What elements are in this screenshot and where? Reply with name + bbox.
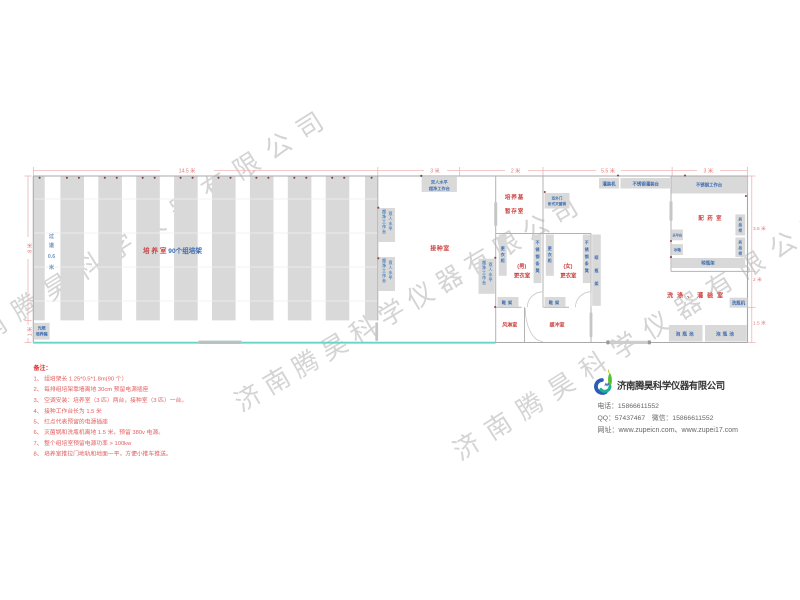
svg-text:泡瓶池: 泡瓶池 <box>676 331 696 338</box>
svg-text:工: 工 <box>382 219 386 224</box>
svg-text:QQ：57437467 微信：15866611552: QQ：57437467 微信：15866611552 <box>598 413 714 422</box>
svg-text:人: 人 <box>488 267 493 272</box>
svg-text:净: 净 <box>482 265 486 270</box>
svg-text:3、 空调安装：培养室（3 匹）两台，接种室（3 匹）一台。: 3、 空调安装：培养室（3 匹）两台，接种室（3 匹）一台。 <box>34 396 188 404</box>
svg-text:晾: 晾 <box>595 254 599 260</box>
svg-text:2、 每排组培架靠墙离地 30cm 预留电源插座: 2、 每排组培架靠墙离地 30cm 预留电源插座 <box>34 385 149 393</box>
svg-text:鞋架: 鞋架 <box>549 299 561 306</box>
svg-text:平: 平 <box>489 277 493 282</box>
svg-text:条: 条 <box>535 260 540 266</box>
svg-text:洗涤、灌装室: 洗涤、灌装室 <box>667 292 727 300</box>
svg-text:2 米: 2 米 <box>511 166 521 174</box>
svg-text:晾瓶架: 晾瓶架 <box>701 259 715 266</box>
svg-text:5.5 米: 5.5 米 <box>601 166 616 174</box>
svg-text:光照: 光照 <box>37 325 46 331</box>
svg-text:柜: 柜 <box>547 257 552 263</box>
svg-text:双: 双 <box>388 211 393 216</box>
svg-text:不: 不 <box>536 239 540 245</box>
svg-text:钢: 钢 <box>585 253 589 259</box>
svg-text:备注：: 备注： <box>33 364 52 372</box>
svg-text:人: 人 <box>388 265 393 270</box>
svg-text:净: 净 <box>382 214 386 219</box>
svg-text:8、 培养室推拉门地轨和地面一平，方便小推车推送。: 8、 培养室推拉门地轨和地面一平，方便小推车推送。 <box>34 450 172 458</box>
svg-text:4、 接种工作台长为 1.5 米: 4、 接种工作台长为 1.5 米 <box>34 407 102 415</box>
svg-text:药: 药 <box>739 217 743 222</box>
svg-text:柜: 柜 <box>738 228 743 233</box>
svg-text:柜: 柜 <box>738 251 743 256</box>
svg-text:超净工作台: 超净工作台 <box>428 185 450 192</box>
svg-text:品: 品 <box>739 222 743 227</box>
svg-text:卧式灭菌锅: 卧式灭菌锅 <box>548 201 566 206</box>
svg-text:工: 工 <box>482 270 486 275</box>
svg-text:接种室: 接种室 <box>429 245 450 253</box>
svg-text:济南腾昊科学仪器有限公司: 济南腾昊科学仪器有限公司 <box>617 380 725 391</box>
svg-text:更衣室: 更衣室 <box>514 271 531 279</box>
svg-text:培 养 室 90个组培架: 培 养 室 90个组培架 <box>143 246 202 255</box>
svg-text:不: 不 <box>585 239 589 245</box>
svg-text:台: 台 <box>482 280 486 285</box>
svg-text:1、 组培架长 1.25*0.5*1.8m(90 个）: 1、 组培架长 1.25*0.5*1.8m(90 个） <box>34 374 128 382</box>
svg-text:6、 灭菌锅和洗瓶机离地 1.5 米，预留 380v 电源。: 6、 灭菌锅和洗瓶机离地 1.5 米，预留 380v 电源。 <box>34 428 164 436</box>
svg-text:超: 超 <box>381 258 386 263</box>
svg-text:3.5 米: 3.5 米 <box>753 225 766 232</box>
svg-text:7、 整个组培室预留电源功率 > 100kw: 7、 整个组培室预留电源功率 > 100kw <box>34 439 133 447</box>
svg-text:锈: 锈 <box>585 246 589 252</box>
svg-text:3 米: 3 米 <box>430 166 440 174</box>
svg-text:电话：15866611552: 电话：15866611552 <box>598 401 660 410</box>
svg-text:平: 平 <box>389 275 393 280</box>
svg-text:培养箱: 培养箱 <box>36 331 48 337</box>
svg-text:鞋架: 鞋架 <box>502 299 514 306</box>
svg-text:天平台: 天平台 <box>673 233 683 238</box>
svg-text:培养基: 培养基 <box>505 193 524 201</box>
svg-text:道: 道 <box>49 241 55 249</box>
svg-text:药: 药 <box>739 240 743 245</box>
svg-text:条: 条 <box>584 260 589 266</box>
svg-text:锈: 锈 <box>536 246 540 252</box>
svg-text:人: 人 <box>388 216 393 221</box>
svg-text:2 米: 2 米 <box>753 276 762 283</box>
svg-text:8 米: 8 米 <box>25 242 33 252</box>
svg-text:双人水平: 双人水平 <box>431 179 449 186</box>
svg-text:台: 台 <box>382 278 386 283</box>
svg-text:米: 米 <box>49 263 55 271</box>
svg-text:缓冲室: 缓冲室 <box>549 321 564 328</box>
svg-text:双外门: 双外门 <box>552 196 563 201</box>
svg-text:衣: 衣 <box>548 251 552 257</box>
svg-text:品: 品 <box>739 245 743 250</box>
svg-text:净: 净 <box>382 263 386 268</box>
svg-text:超: 超 <box>381 209 386 214</box>
svg-text:5、 红点代表预留的电源插座: 5、 红点代表预留的电源插座 <box>34 417 109 425</box>
svg-text:钢: 钢 <box>536 253 540 259</box>
svg-text:架: 架 <box>594 280 599 286</box>
svg-text:配 药 室: 配 药 室 <box>698 214 722 222</box>
svg-text:灌装机: 灌装机 <box>602 180 616 187</box>
svg-text:双: 双 <box>488 262 493 267</box>
svg-text:台: 台 <box>382 229 386 234</box>
svg-text:风淋室: 风淋室 <box>502 321 517 328</box>
svg-text:网址：www.zupeicn.com、www.zupei17: 网址：www.zupeicn.com、www.zupei17.com <box>598 425 739 434</box>
svg-text:水: 水 <box>488 272 493 277</box>
svg-text:不锈钢灌装台: 不锈钢灌装台 <box>633 180 660 187</box>
svg-text:柜: 柜 <box>500 257 505 263</box>
svg-text:3 米: 3 米 <box>704 166 714 174</box>
svg-text:泡瓶池: 泡瓶池 <box>716 331 736 338</box>
svg-text:14.5 米: 14.5 米 <box>179 166 197 174</box>
svg-text:瓶: 瓶 <box>595 267 599 273</box>
svg-text:工: 工 <box>382 268 386 273</box>
svg-text:水: 水 <box>388 221 393 226</box>
svg-text:不锈钢工作台: 不锈钢工作台 <box>696 182 723 189</box>
svg-text:作: 作 <box>382 273 386 278</box>
svg-text:水: 水 <box>388 270 393 275</box>
svg-text:1.5 米: 1.5 米 <box>753 320 766 327</box>
svg-text:衣: 衣 <box>501 251 505 257</box>
svg-text:暂存室: 暂存室 <box>505 207 524 215</box>
svg-text:0.6: 0.6 <box>48 254 55 260</box>
svg-text:平: 平 <box>389 226 393 231</box>
svg-text:双: 双 <box>388 260 393 265</box>
svg-text:超: 超 <box>481 260 486 265</box>
svg-text:作: 作 <box>482 275 486 280</box>
svg-text:作: 作 <box>382 224 386 229</box>
svg-text:1 米: 1 米 <box>25 326 33 336</box>
svg-text:更衣室: 更衣室 <box>560 271 577 279</box>
svg-text:济南腾昊科学仪器有限公司: 济南腾昊科学仪器有限公司 <box>229 188 589 418</box>
svg-text:(男): (男) <box>517 262 526 270</box>
svg-text:(女): (女) <box>564 262 573 270</box>
svg-text:过: 过 <box>49 232 55 240</box>
svg-text:洗瓶机: 洗瓶机 <box>732 300 746 307</box>
svg-text:冰箱: 冰箱 <box>674 247 682 252</box>
